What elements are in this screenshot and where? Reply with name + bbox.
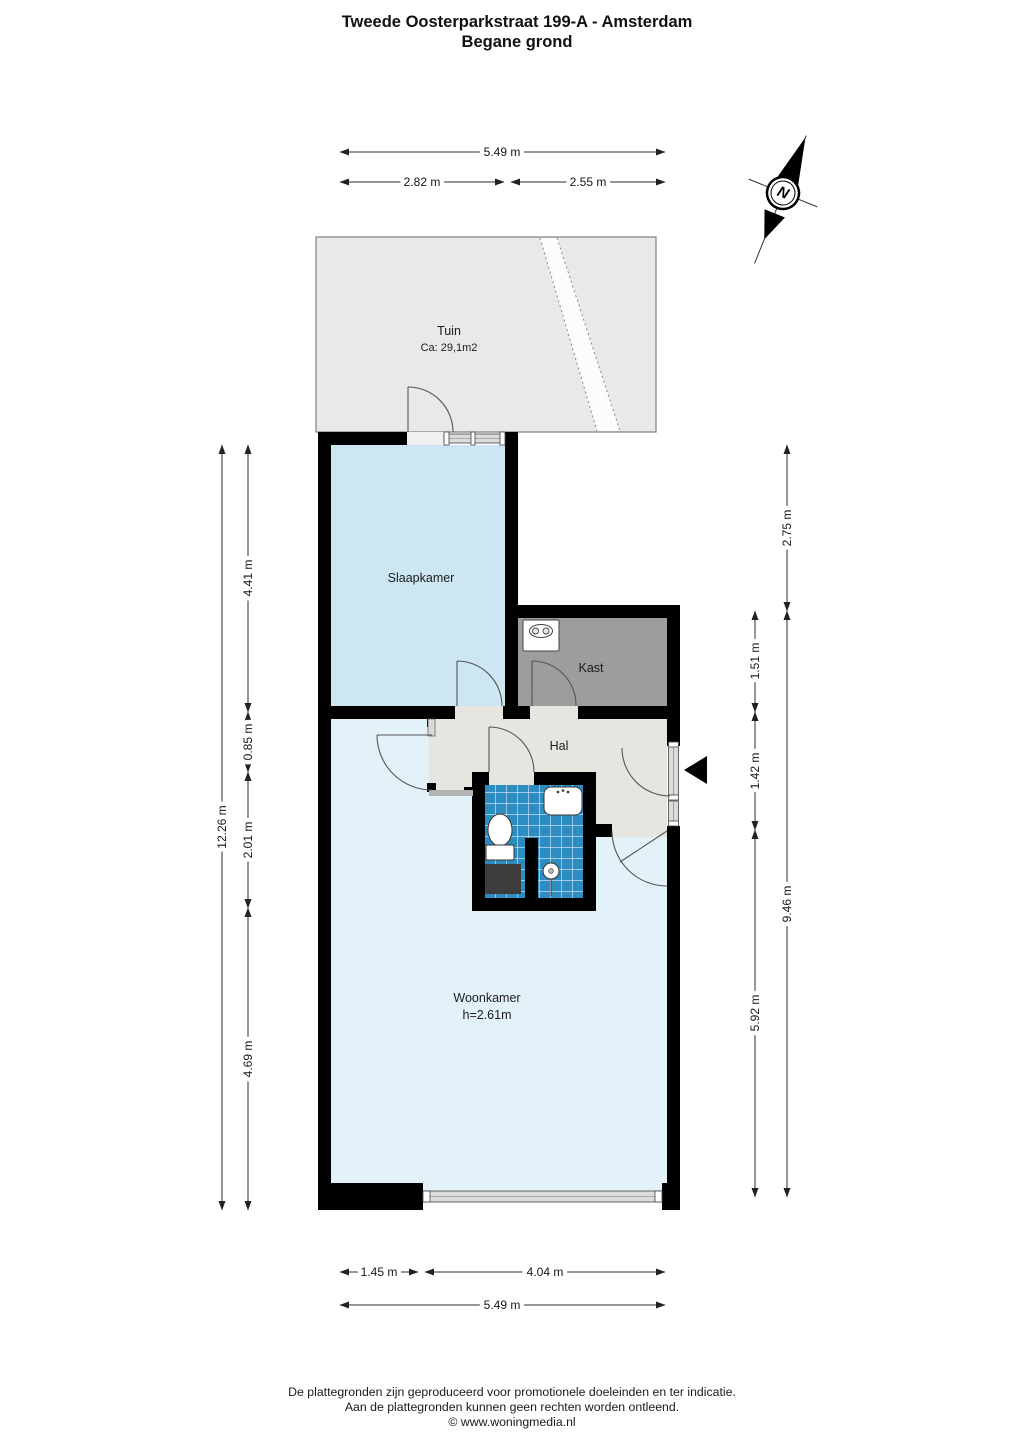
door-gap: [429, 735, 435, 788]
entrance-arrow-icon: [684, 756, 707, 784]
dim-left-seg1: 4.41 m: [241, 560, 255, 597]
dim-right-outer2: 9.46 m: [780, 886, 794, 923]
window-woonkamer: [423, 1191, 662, 1202]
dim-right-inner2: 1.42 m: [748, 753, 762, 790]
kast-label: Kast: [578, 661, 604, 675]
footer-line2: Aan de plattegronden kunnen geen rechten…: [345, 1400, 679, 1414]
dim-right-inner1: 1.51 m: [748, 643, 762, 680]
partition-window: [428, 719, 435, 736]
toilet-icon: [486, 814, 514, 860]
dim-left-total: 12.26 m: [215, 805, 229, 848]
partition-wall: [429, 790, 473, 796]
woonkamer-height-label: h=2.61m: [463, 1008, 512, 1022]
footer-line1: De plattegronden zijn geproduceerd voor …: [288, 1385, 736, 1399]
door-gap: [455, 706, 503, 719]
door-gap: [407, 432, 444, 445]
footer-line3: © www.woningmedia.nl: [448, 1415, 575, 1429]
door-gap: [530, 706, 578, 719]
hal-label: Hal: [550, 739, 569, 753]
plan-title-line2: Begane grond: [462, 33, 573, 51]
dim-left-seg4: 4.69 m: [241, 1041, 255, 1078]
dim-bottom-total: 5.49 m: [484, 1298, 521, 1312]
compass-north-icon: N: [720, 122, 840, 278]
dim-left-seg2: 0.85 m: [241, 724, 255, 761]
dim-left-seg3: 2.01 m: [241, 822, 255, 859]
dim-bottom-right: 4.04 m: [527, 1265, 564, 1279]
tuin-area-label: Ca: 29,1m2: [421, 342, 478, 354]
dim-right-inner3: 5.92 m: [748, 995, 762, 1032]
window-slaapkamer-tuin: [444, 432, 505, 445]
door-gap: [612, 824, 667, 837]
slaapkamer-label: Slaapkamer: [388, 571, 455, 585]
window-entrance-side: [669, 801, 679, 826]
dim-right-outer1: 2.75 m: [780, 510, 794, 547]
dim-top-total: 5.49 m: [484, 145, 521, 159]
dim-top-left: 2.82 m: [404, 175, 441, 189]
washing-machine-icon: [523, 620, 559, 651]
floorplan-page: Tweede Oosterparkstraat 199-A - Amsterda…: [0, 0, 1024, 1448]
sink-icon: [544, 787, 582, 815]
dim-top-right: 2.55 m: [570, 175, 607, 189]
woonkamer-label: Woonkamer: [453, 991, 520, 1005]
door-gap: [489, 772, 534, 785]
entrance-door-panel: [669, 742, 679, 800]
dim-bottom-left: 1.45 m: [361, 1265, 398, 1279]
room-tuin: Tuin Ca: 29,1m2: [316, 237, 656, 432]
tuin-label: Tuin: [437, 324, 461, 338]
plan-title-line1: Tweede Oosterparkstraat 199-A - Amsterda…: [342, 13, 693, 31]
